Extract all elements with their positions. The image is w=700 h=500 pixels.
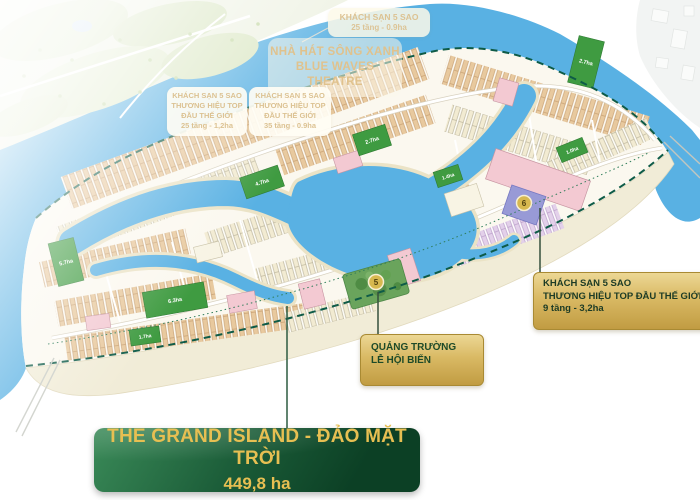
callout-hotel5star-line1: KHÁCH SẠN 5 SAO <box>543 278 700 291</box>
label-theatre-line2: BLUE WAVES THEATRE <box>270 60 400 90</box>
callout-hotel5star: KHÁCH SẠN 5 SAO THƯƠNG HIỆU TOP ĐẦU THẾ … <box>533 272 700 330</box>
label-hotel-left-line3: ĐẦU THẾ GIỚI <box>169 111 245 121</box>
marker-hotel-number: 6 <box>522 199 527 208</box>
golf-pond <box>72 20 92 32</box>
label-hotel-top: KHÁCH SẠN 5 SAO 25 tầng - 0.9ha <box>328 8 430 37</box>
callout-hotel5star-line2: THƯƠNG HIỆU TOP ĐẦU THẾ GIỚI <box>543 291 700 304</box>
label-hotel-top-line2: 25 tầng - 0.9ha <box>330 23 428 33</box>
label-hotel-mid-line3: ĐẦU THẾ GIỚI <box>251 111 329 121</box>
label-hotel-left: KHÁCH SẠN 5 SAO THƯƠNG HIỆU TOP ĐẦU THẾ … <box>167 87 247 136</box>
label-hotel-mid-line4: 35 tầng - 0.9ha <box>251 121 329 131</box>
masterplan-page: 5.7ha 4.7ha 2.7ha 2.7ha 6.3ha 1.4ha 1.0h… <box>0 0 700 500</box>
label-hotel-mid-line1: KHÁCH SẠN 5 SAO <box>251 91 329 101</box>
callout-hotel5star-line3: 9 tầng - 3,2ha <box>543 303 700 316</box>
project-banner: THE GRAND ISLAND - ĐẢO MẶT TRỜI 449,8 ha <box>94 428 420 492</box>
marker-hotel: 6 <box>517 196 532 211</box>
callout-plaza-line1: QUẢNG TRƯỜNG <box>371 341 473 354</box>
project-area: 449,8 ha <box>94 474 420 494</box>
pink-block <box>85 313 111 330</box>
label-hotel-left-line4: 25 tầng - 1,2ha <box>169 121 245 131</box>
label-hotel-mid: KHÁCH SẠN 5 SAO THƯƠNG HIỆU TOP ĐẦU THẾ … <box>249 87 331 136</box>
callout-plaza: QUẢNG TRƯỜNG LỄ HỘI BIỂN <box>360 334 484 386</box>
marker-plaza: 5 <box>369 275 384 290</box>
label-hotel-left-line1: KHÁCH SẠN 5 SAO <box>169 91 245 101</box>
label-hotel-left-line2: THƯƠNG HIỆU TOP <box>169 101 245 111</box>
project-title: THE GRAND ISLAND - ĐẢO MẶT TRỜI <box>94 426 420 470</box>
callout-plaza-line2: LỄ HỘI BIỂN <box>371 354 473 367</box>
label-hotel-mid-line2: THƯƠNG HIỆU TOP <box>251 101 329 111</box>
label-hotel-top-line1: KHÁCH SẠN 5 SAO <box>330 12 428 23</box>
marker-plaza-number: 5 <box>374 278 379 287</box>
label-theatre-line1: NHÀ HÁT SÔNG XANH <box>270 45 400 60</box>
